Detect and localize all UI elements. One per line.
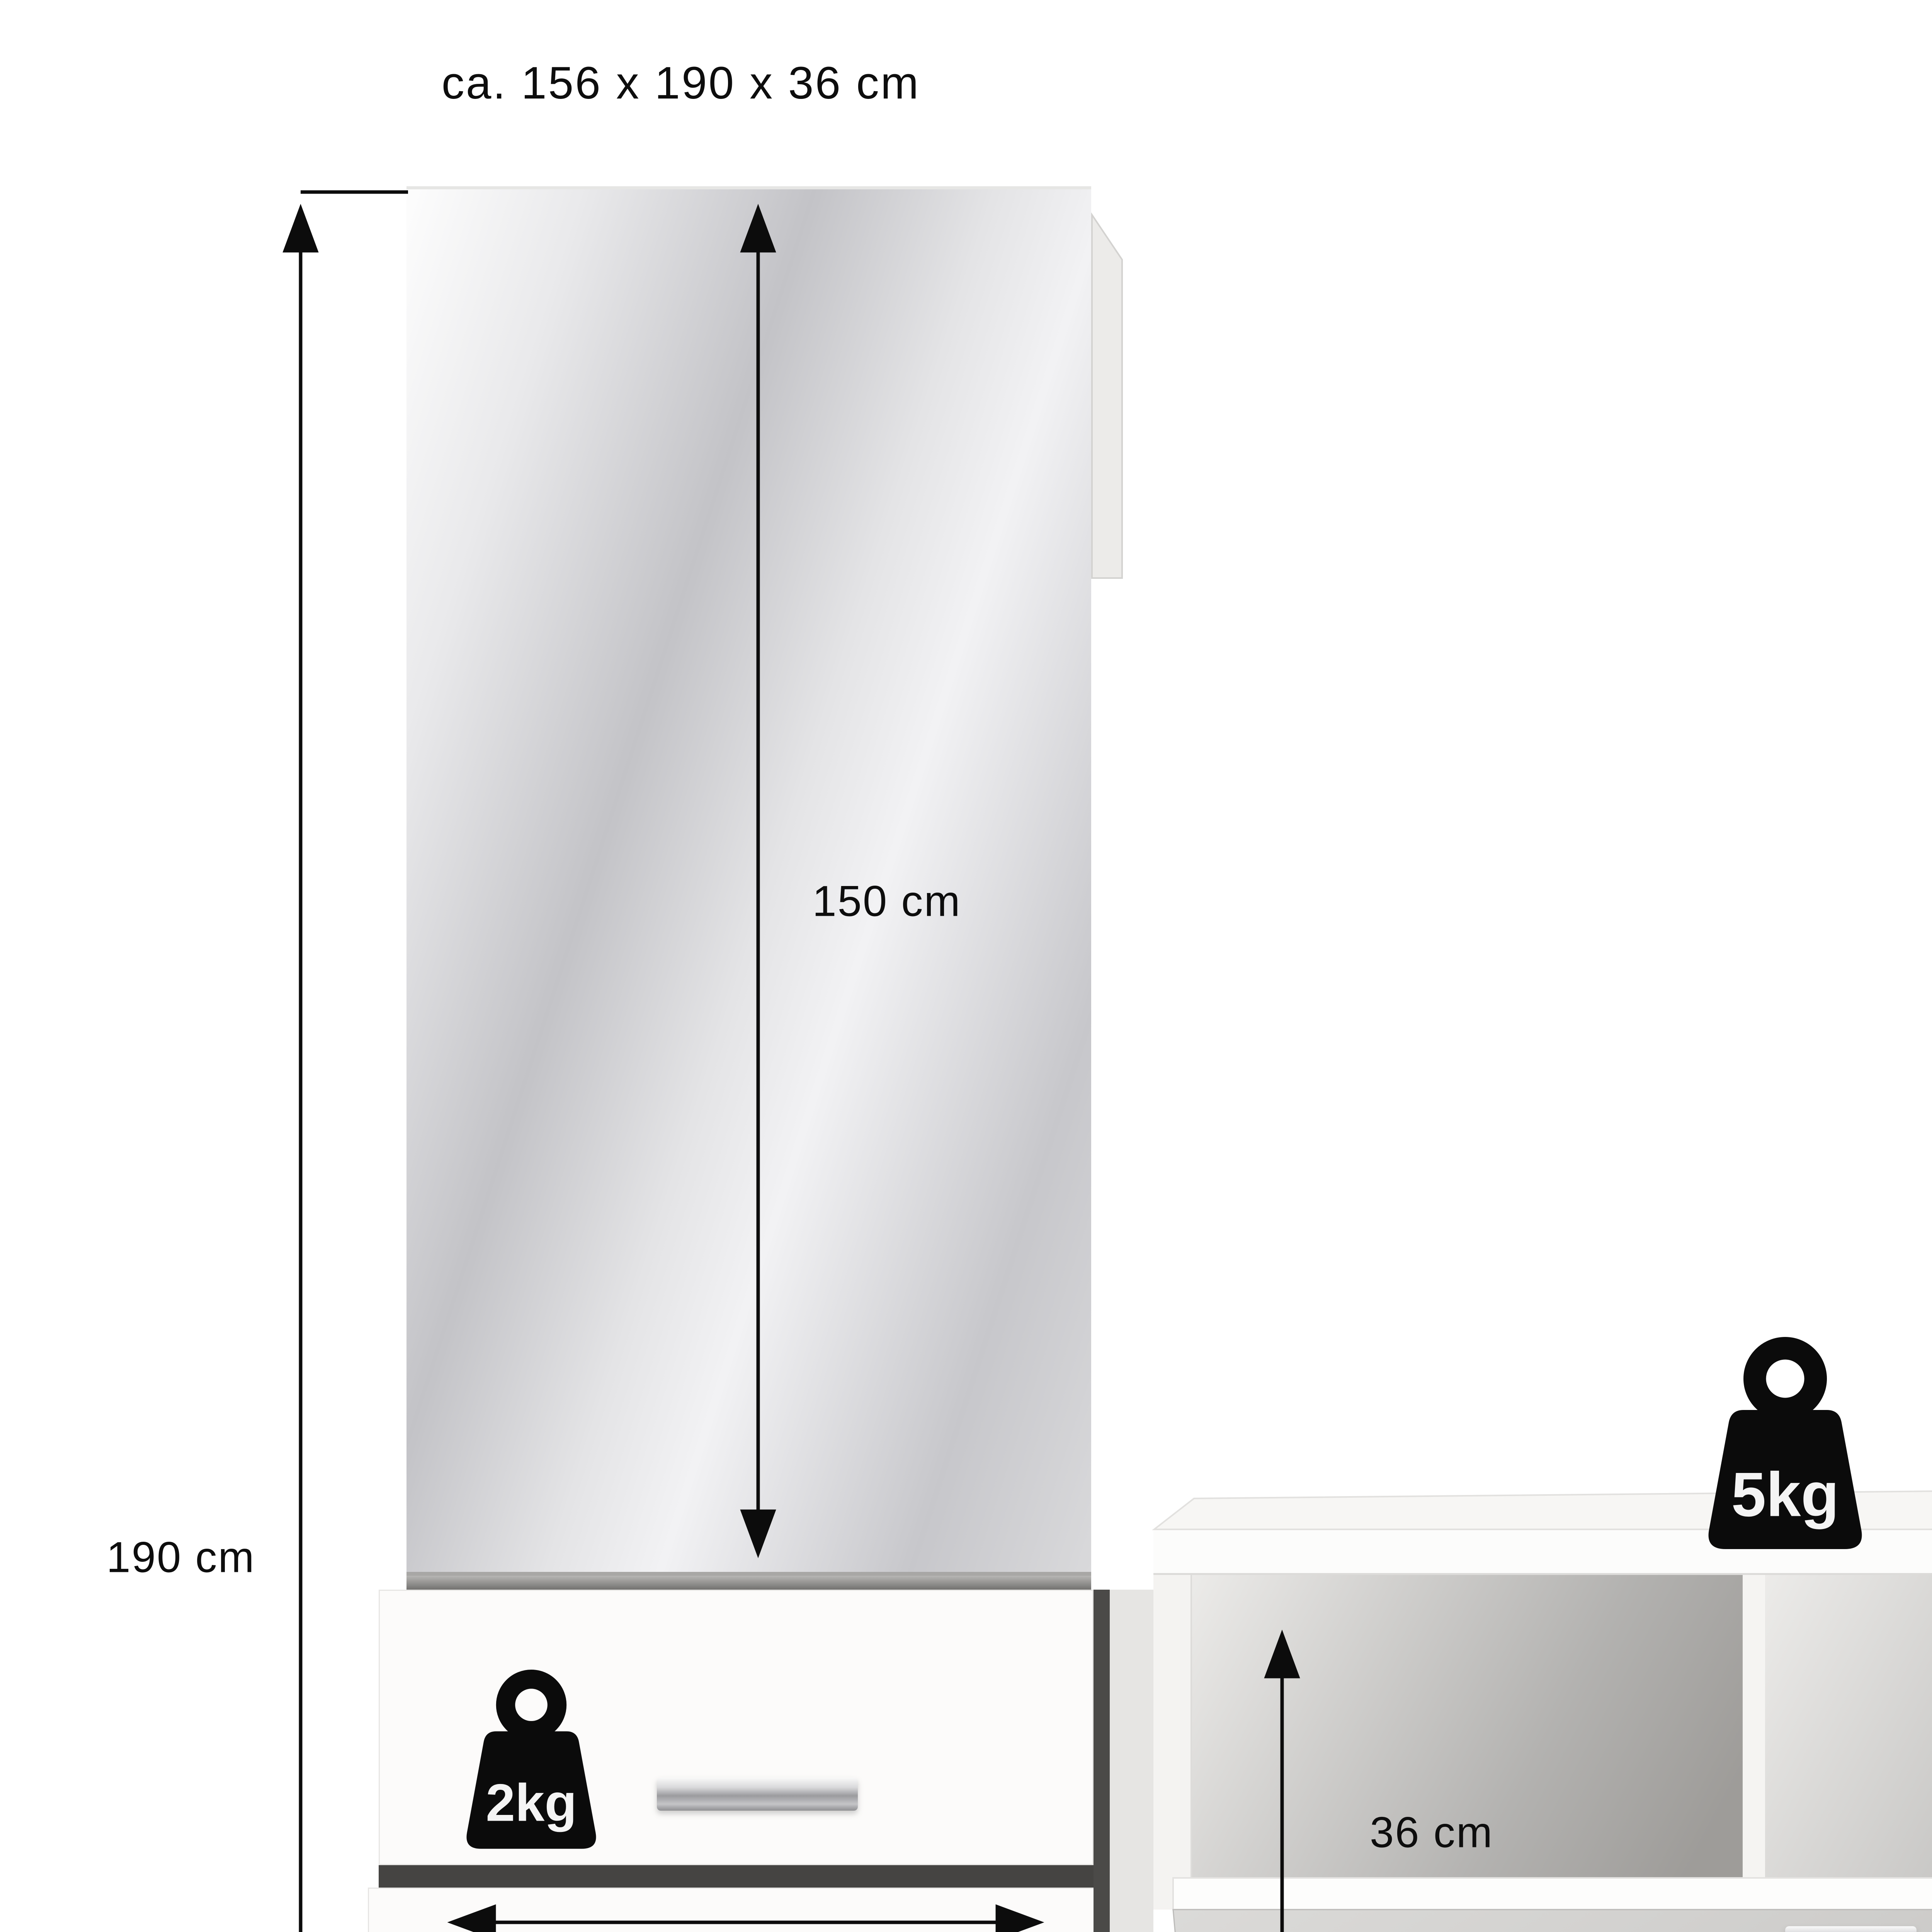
mirror-door xyxy=(406,186,1091,1576)
weight-5kg-top-icon: 5kg xyxy=(1698,1337,1872,1563)
flap-handle xyxy=(1785,1926,1917,1932)
weight-ring xyxy=(1755,1348,1816,1409)
drawer-lower-open xyxy=(368,1888,1101,1932)
label-total-height: 190 cm xyxy=(106,1532,255,1582)
drawer-box-side-light xyxy=(1110,1590,1153,1932)
bench-divider xyxy=(1743,1575,1765,1879)
weight-label: 5kg xyxy=(1731,1460,1839,1530)
side-panel-shape xyxy=(1092,215,1122,578)
label-opening-height: 36 cm xyxy=(1370,1808,1493,1857)
weight-2kg-icon: 2kg xyxy=(458,1670,605,1861)
weight-label: 2kg xyxy=(486,1773,577,1832)
bench-opening-right xyxy=(1765,1575,1932,1879)
mirror-drawer-gap xyxy=(406,1576,1091,1590)
bench-left-panel xyxy=(1153,1575,1192,1910)
label-mirror-height: 150 cm xyxy=(812,876,961,926)
drawer-gap xyxy=(379,1865,1094,1888)
furniture-dimension-diagram: 2kg 5kg 5kg 5kg xyxy=(0,0,1932,1932)
overall-size-title: ca. 156 x 190 x 36 cm xyxy=(442,57,920,109)
flap-top-edge xyxy=(1173,1878,1932,1910)
drawer-upper-handle xyxy=(657,1777,858,1811)
drawer-box-side-dark xyxy=(1094,1590,1110,1932)
weight-ring xyxy=(506,1679,557,1731)
